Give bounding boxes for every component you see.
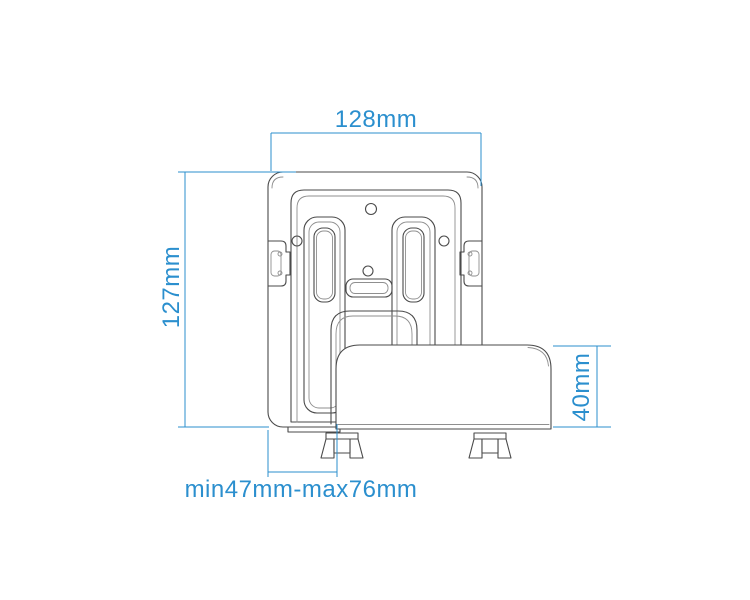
screw-hole-top — [366, 204, 377, 215]
screw-hole-right — [439, 236, 449, 246]
left-keyhole-slot — [314, 228, 335, 302]
dimension-height-label: 127mm — [158, 246, 185, 329]
dimension-holder-height: 40mm — [553, 346, 611, 427]
left-foot — [321, 433, 363, 458]
dimension-width-label: 128mm — [335, 106, 418, 133]
mount-dimension-drawing: 128mm 127mm 40mm min47mm-max7 — [0, 0, 750, 600]
left-keyhole-slot-inner — [317, 231, 333, 299]
dimension-height: 127mm — [158, 172, 296, 427]
holder-box — [336, 345, 551, 429]
right-keyhole-slot-inner — [406, 231, 422, 299]
right-keyhole-slot — [403, 228, 424, 302]
diagram-canvas: 128mm 127mm 40mm min47mm-max7 — [0, 0, 750, 600]
left-side-clip — [268, 241, 290, 286]
dimension-width: 128mm — [271, 106, 481, 186]
dimension-adjustable-range-label: min47mm-max76mm — [185, 476, 418, 503]
corner-depth-line — [272, 177, 283, 188]
right-foot — [469, 433, 511, 458]
dimension-annotations: 128mm 127mm 40mm min47mm-max7 — [158, 106, 611, 503]
dimension-holder-height-label: 40mm — [568, 353, 595, 422]
right-side-clip — [460, 241, 482, 286]
screw-hole-center — [363, 266, 373, 276]
corner-depth-line — [467, 177, 478, 188]
bottom-lip — [288, 427, 340, 432]
holder-box-body — [336, 345, 551, 429]
bridge-pocket — [346, 279, 392, 297]
bridge-pocket-inner — [350, 283, 388, 294]
dimension-adjustable-range: min47mm-max76mm — [185, 424, 418, 503]
